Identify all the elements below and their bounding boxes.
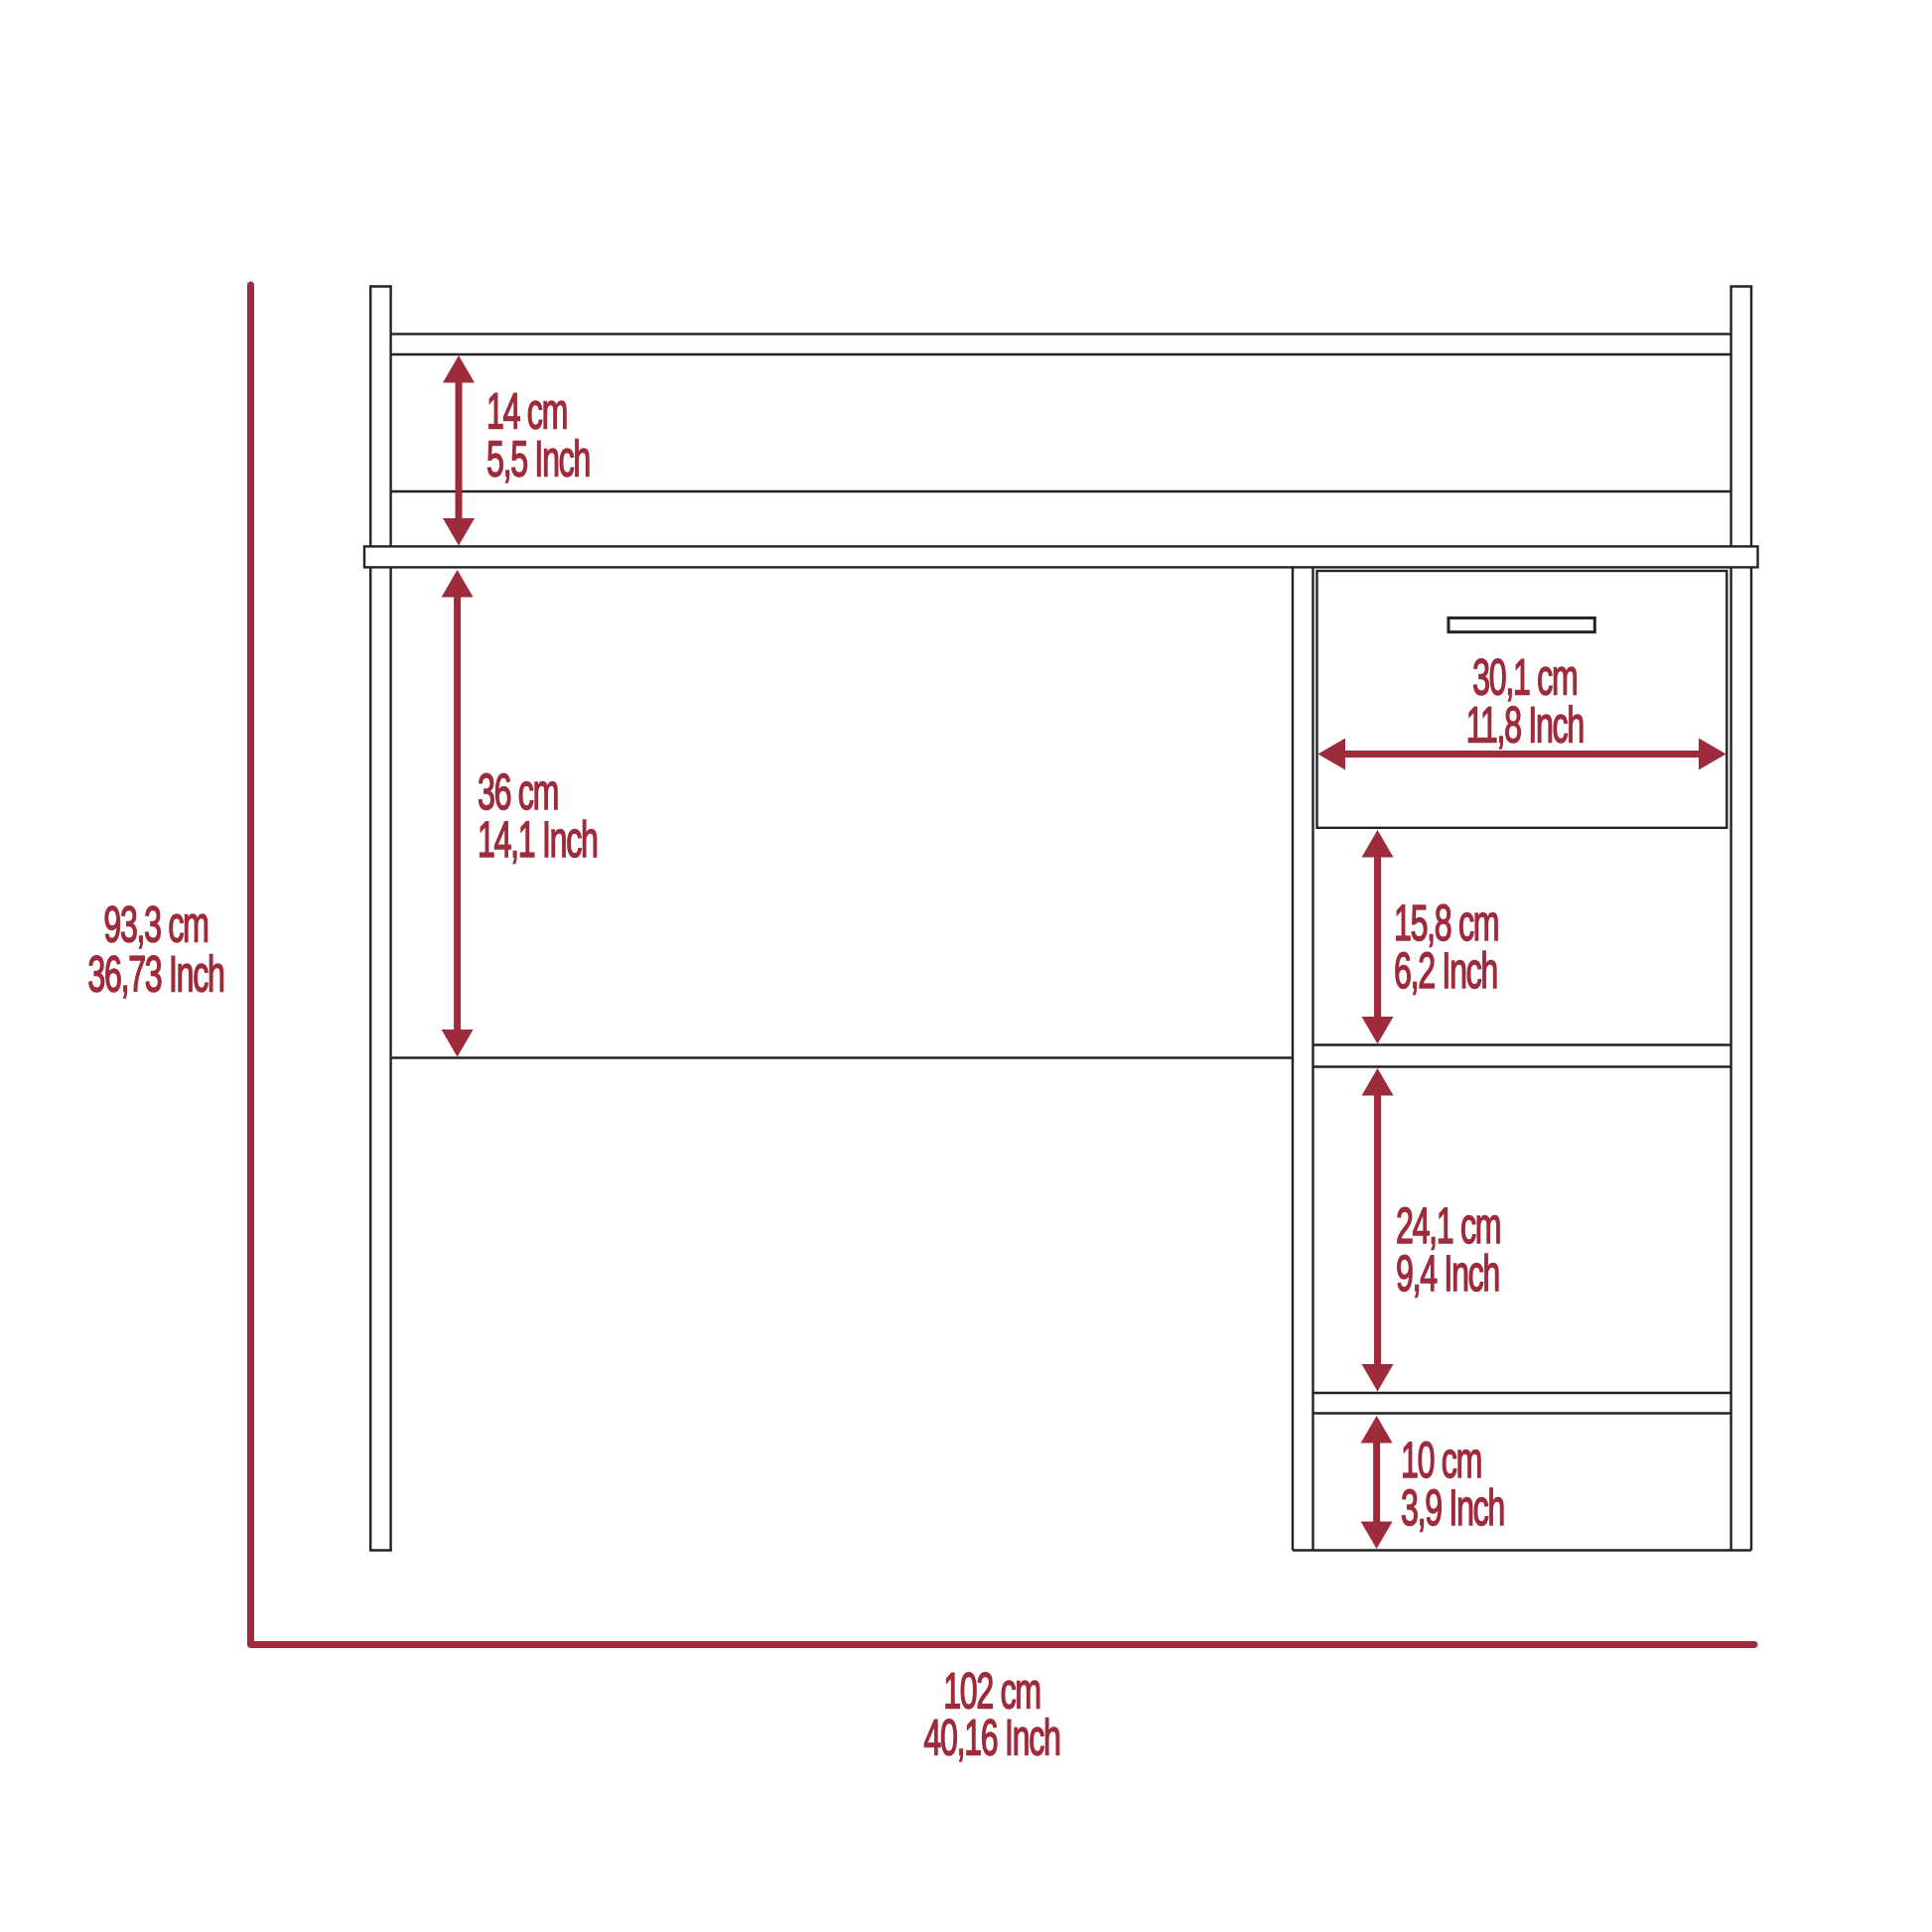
svg-text:36,73 Inch: 36,73 Inch (87, 946, 223, 1003)
svg-text:14,1 Inch: 14,1 Inch (478, 812, 598, 869)
svg-text:11,8 Inch: 11,8 Inch (1466, 697, 1584, 754)
svg-text:5,5 Inch: 5,5 Inch (486, 431, 590, 487)
svg-text:6,2 Inch: 6,2 Inch (1394, 943, 1497, 1000)
svg-text:40,16 Inch: 40,16 Inch (923, 1710, 1059, 1766)
svg-text:3,9 Inch: 3,9 Inch (1401, 1480, 1504, 1537)
svg-text:9,4 Inch: 9,4 Inch (1396, 1246, 1499, 1303)
